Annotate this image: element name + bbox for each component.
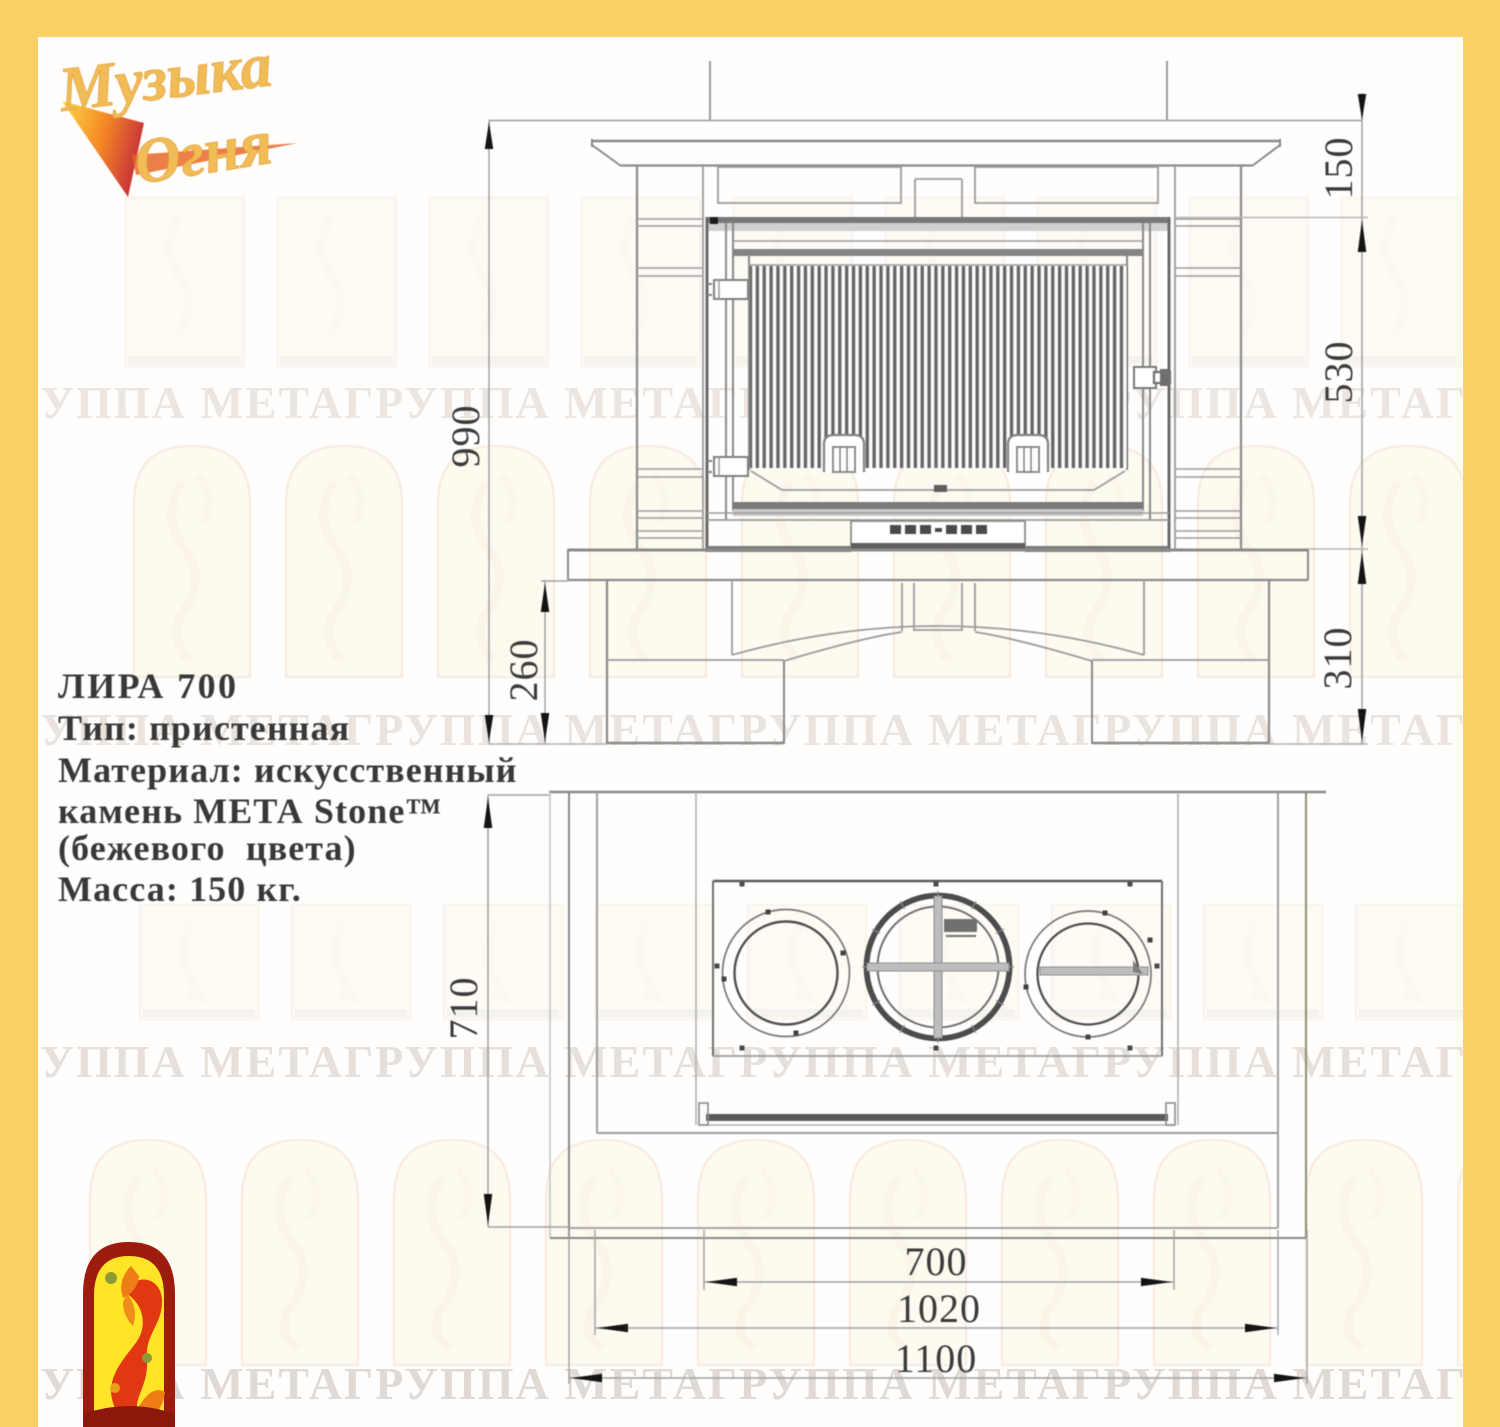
svg-text:530: 530	[1316, 341, 1361, 404]
svg-text:Огня: Огня	[129, 106, 277, 198]
svg-text:260: 260	[501, 639, 546, 702]
svg-text:990: 990	[443, 405, 488, 468]
svg-text:1020: 1020	[897, 1286, 981, 1331]
svg-text:310: 310	[1315, 627, 1360, 690]
svg-text:150: 150	[1316, 137, 1361, 200]
svg-text:1100: 1100	[895, 1336, 978, 1381]
svg-text:710: 710	[441, 977, 486, 1040]
svg-text:700: 700	[905, 1239, 968, 1284]
